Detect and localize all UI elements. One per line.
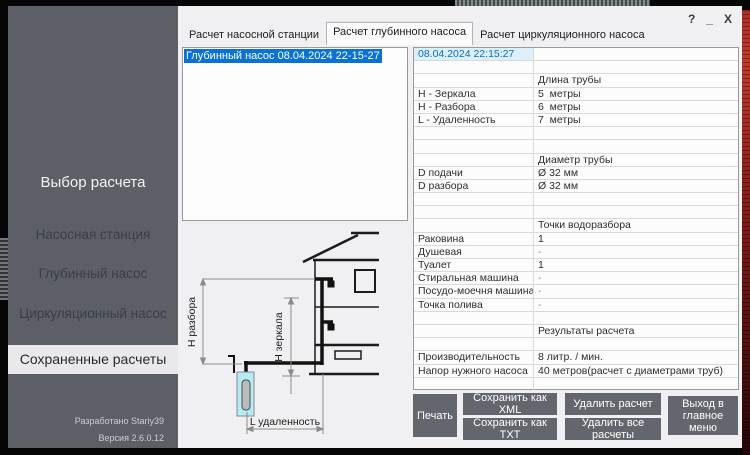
sidebar: Выбор расчета Насосная станцияГлубинный … xyxy=(8,6,178,448)
table-row xyxy=(414,312,738,325)
table-row xyxy=(414,378,738,391)
sidebar-item-0[interactable]: Насосная станция xyxy=(8,227,178,242)
table-row: D разбораØ 32 мм xyxy=(414,180,738,193)
table-cell-label xyxy=(414,193,534,205)
table-cell-label xyxy=(414,61,534,73)
table-cell-label: Точка полива xyxy=(414,299,534,311)
table-cell-label: H - Разбора xyxy=(414,101,534,113)
version-label: Версия 2.6.0.12 xyxy=(99,433,164,443)
sidebar-item-3[interactable]: Сохраненные расчеты xyxy=(8,345,178,374)
submersible-pump xyxy=(242,380,250,410)
table-cell-value xyxy=(534,338,738,350)
sidebar-item-2[interactable]: Циркуляционный насос xyxy=(8,306,178,321)
window-shape xyxy=(355,270,375,292)
table-row xyxy=(414,206,738,219)
dimension-label-l-udalennost: L удаленность xyxy=(250,416,321,428)
table-row: Точки водоразбора xyxy=(414,219,738,232)
table-cell-value: - xyxy=(534,285,738,297)
table-cell-value: - xyxy=(534,272,738,284)
table-cell-value: - xyxy=(534,246,738,258)
table-cell-label: Стиральная машина xyxy=(414,272,534,284)
table-cell-value xyxy=(534,312,738,324)
table-cell-value: 7 метры xyxy=(534,114,738,126)
dimension-label-h-zerkala: H зеркала xyxy=(273,312,285,362)
table-cell-label xyxy=(414,74,534,86)
table-cell-label xyxy=(414,219,534,231)
delete-calc-button[interactable]: Удалить расчет xyxy=(565,393,661,415)
radiator-shape xyxy=(335,351,361,359)
help-icon[interactable]: ? xyxy=(688,12,695,26)
table-row xyxy=(414,61,738,74)
table-row: 08.04.2024 22:15:27 xyxy=(414,48,738,61)
table-cell-label: D подачи xyxy=(414,167,534,179)
table-cell-value xyxy=(534,140,738,152)
table-cell-value xyxy=(534,127,738,139)
table-row: Раковина1 xyxy=(414,233,738,246)
window-controls: ? _ X xyxy=(688,12,732,26)
table-cell-value: Точки водоразбора xyxy=(534,219,738,231)
table-cell-value: 8 литр. / мин. xyxy=(534,351,738,363)
table-cell-label: L - Удаленность xyxy=(414,114,534,126)
tab-1[interactable]: Расчет глубинного насоса xyxy=(326,22,473,45)
table-cell-label xyxy=(414,154,534,166)
table-row xyxy=(414,338,738,351)
table-cell-label: Производительность xyxy=(414,351,534,363)
table-cell-value: 6 метры xyxy=(534,101,738,113)
table-cell-label xyxy=(414,325,534,337)
desktop-background: Выбор расчета Насосная станцияГлубинный … xyxy=(0,0,750,455)
table-cell-label: H - Зеркала xyxy=(414,88,534,100)
table-row: Душевая- xyxy=(414,246,738,259)
saved-calc-list-item[interactable]: Глубинный насос 08.04.2024 22-15-27 xyxy=(184,49,382,63)
table-cell-value: 1 xyxy=(534,259,738,271)
table-cell-label xyxy=(414,378,534,391)
saved-calculations-list[interactable]: Глубинный насос 08.04.2024 22-15-27 xyxy=(182,47,408,221)
tab-bar: Расчет насосной станцииРасчет глубинного… xyxy=(182,26,652,45)
table-row: H - Разбора6 метры xyxy=(414,101,738,114)
table-cell-value: 1 xyxy=(534,233,738,245)
table-row: Точка полива- xyxy=(414,299,738,312)
pump-well-diagram: H разбора H зеркала L удаленность xyxy=(182,226,408,448)
table-row xyxy=(414,193,738,206)
table-row: Напор нужного насоса40 метров(расчет с д… xyxy=(414,365,738,378)
tab-0[interactable]: Расчет насосной станции xyxy=(182,26,326,45)
table-cell-value: 40 метров(расчет с диаметрами труб) xyxy=(534,365,738,377)
tab-2[interactable]: Расчет циркуляционного насоса xyxy=(473,26,652,45)
delete-all-button[interactable]: Удалить все расчеты xyxy=(565,418,661,440)
table-cell-value: - xyxy=(534,299,738,311)
table-cell-label: 08.04.2024 22:15:27 xyxy=(414,48,534,60)
table-row: Длина трубы xyxy=(414,74,738,87)
table-row: Стиральная машина- xyxy=(414,272,738,285)
table-cell-label: Раковина xyxy=(414,233,534,245)
sidebar-title: Выбор расчета xyxy=(8,174,178,191)
table-cell-label: D разбора xyxy=(414,180,534,192)
table-cell-label: Туалет xyxy=(414,259,534,271)
table-cell-label xyxy=(414,206,534,218)
table-cell-value: 5 метры xyxy=(534,88,738,100)
table-row: L - Удаленность7 метры xyxy=(414,114,738,127)
table-cell-label xyxy=(414,127,534,139)
faucet-icon xyxy=(328,281,334,287)
save-txt-button[interactable]: Сохранить как TXT xyxy=(463,418,557,440)
details-table[interactable]: 08.04.2024 22:15:27Длина трубыH - Зеркал… xyxy=(413,47,739,390)
table-cell-label: Напор нужного насоса xyxy=(414,365,534,377)
table-row: Туалет1 xyxy=(414,259,738,272)
table-cell-value: Результаты расчета xyxy=(534,325,738,337)
app-window: Выбор расчета Насосная станцияГлубинный … xyxy=(8,6,742,448)
print-button[interactable]: Печать xyxy=(413,394,457,437)
table-row: H - Зеркала5 метры xyxy=(414,88,738,101)
table-cell-value: Ø 32 мм xyxy=(534,180,738,192)
main-area: ? _ X Расчет насосной станцииРасчет глуб… xyxy=(178,6,742,448)
table-cell-label: Душевая xyxy=(414,246,534,258)
table-row xyxy=(414,127,738,140)
table-cell-label xyxy=(414,140,534,152)
table-cell-value: Диаметр трубы xyxy=(534,154,738,166)
table-cell-label: Посудо-моечня машина xyxy=(414,285,534,297)
wallpaper-texture-left xyxy=(0,238,8,300)
house-outline xyxy=(303,233,379,375)
dimension-lines xyxy=(201,279,324,434)
wallpaper-texture-right xyxy=(742,10,750,455)
table-cell-value xyxy=(534,48,738,60)
exit-main-menu-button[interactable]: Выход в главное меню xyxy=(668,396,738,435)
table-cell-value: Длина трубы xyxy=(534,74,738,86)
table-row: Диаметр трубы xyxy=(414,154,738,167)
dimension-label-h-razbora: H разбора xyxy=(186,297,198,347)
table-cell-value xyxy=(534,193,738,205)
table-row: D подачиØ 32 мм xyxy=(414,167,738,180)
table-cell-value: Ø 32 мм xyxy=(534,167,738,179)
table-row: Результаты расчета xyxy=(414,325,738,338)
minimize-icon[interactable]: _ xyxy=(706,12,713,26)
save-xml-button[interactable]: Сохранить как XML xyxy=(463,393,557,415)
table-cell-value xyxy=(534,206,738,218)
table-cell-label xyxy=(414,312,534,324)
table-cell-value xyxy=(534,61,738,73)
faucet-icon xyxy=(328,324,334,330)
table-row: Производительность8 литр. / мин. xyxy=(414,351,738,364)
table-row: Посудо-моечня машина- xyxy=(414,285,738,298)
table-cell-value xyxy=(534,378,738,391)
table-row xyxy=(414,140,738,153)
developer-credit: Разработано Stariy39 xyxy=(75,416,164,426)
sidebar-item-1[interactable]: Глубинный насос xyxy=(8,266,178,281)
table-cell-label xyxy=(414,338,534,350)
close-icon[interactable]: X xyxy=(724,12,732,26)
